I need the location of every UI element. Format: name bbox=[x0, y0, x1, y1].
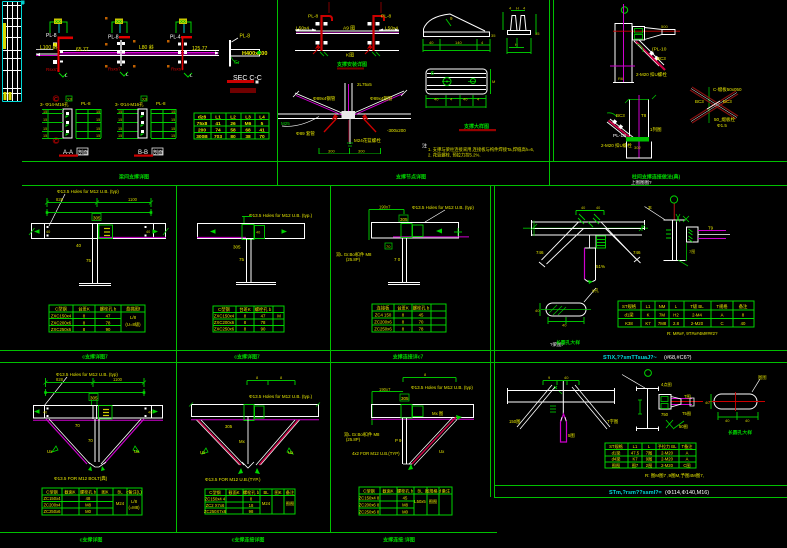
svg-text:PL-8: PL-8 bbox=[308, 14, 318, 20]
svg-text:2.8: 2.8 bbox=[673, 321, 680, 326]
svg-text:PL-8: PL-8 bbox=[381, 14, 391, 20]
svg-text:截面K: 截面K bbox=[382, 488, 393, 495]
svg-text:螺栓孔 b: 螺栓孔 b bbox=[100, 306, 117, 313]
svg-text:703: 703 bbox=[214, 134, 222, 140]
svg-text:75x8: 75x8 bbox=[197, 121, 208, 127]
svg-text:L50x4: L50x4 bbox=[296, 25, 309, 31]
svg-text:L1: L1 bbox=[633, 444, 638, 449]
svg-text:XX: XX bbox=[142, 97, 148, 102]
svg-text:Ux: Ux bbox=[134, 449, 140, 454]
svg-text:ZC4 150: ZC4 150 bbox=[375, 313, 392, 318]
svg-text:Φ89 套管: Φ89 套管 bbox=[296, 130, 315, 137]
svg-text:47: 47 bbox=[261, 314, 266, 319]
svg-text:15: 15 bbox=[43, 118, 47, 122]
svg-text:ZXC200x6: ZXC200x6 bbox=[51, 321, 72, 326]
svg-text:d≥8: d≥8 bbox=[198, 114, 207, 120]
svg-text:3- Φ14-M16孔: 3- Φ14-M16孔 bbox=[115, 101, 144, 108]
svg-text:6: 6 bbox=[431, 71, 434, 77]
svg-text:15: 15 bbox=[43, 127, 47, 131]
svg-text:L50x5: L50x5 bbox=[414, 499, 426, 504]
svg-text:2-M20: 2-M20 bbox=[661, 457, 674, 462]
svg-text:90: 90 bbox=[106, 327, 111, 332]
svg-text:15: 15 bbox=[171, 110, 175, 114]
svg-text:ZC250x6: ZC250x6 bbox=[44, 509, 62, 514]
svg-text:K38: K38 bbox=[625, 321, 633, 326]
svg-text:L100 斜: L100 斜 bbox=[40, 44, 58, 51]
svg-text:Rsxs?: Rsxs? bbox=[171, 67, 184, 72]
svg-text:75: 75 bbox=[86, 258, 92, 263]
svg-text:125.77: 125.77 bbox=[192, 46, 208, 52]
svg-text:7 0: 7 0 bbox=[394, 257, 401, 262]
svg-text:305: 305 bbox=[225, 424, 233, 429]
svg-text:41: 41 bbox=[259, 127, 265, 133]
svg-text:c支撑详图: c支撑详图 bbox=[80, 537, 103, 544]
svg-text:2. 花篮螺栓, 预拉力控5.2%.: 2. 花篮螺栓, 预拉力控5.2%. bbox=[428, 152, 481, 159]
svg-text:K图: K图 bbox=[346, 53, 354, 59]
svg-text:d1梁: d1梁 bbox=[624, 312, 634, 319]
svg-text:40: 40 bbox=[434, 97, 439, 102]
svg-text:φ孔: φ孔 bbox=[592, 287, 600, 294]
svg-text:T级 BL: T级 BL bbox=[690, 303, 704, 310]
svg-text:Rsxs?: Rsxs? bbox=[108, 67, 121, 72]
svg-text:90: 90 bbox=[261, 327, 266, 332]
svg-text:(25.8P): (25.8P) bbox=[346, 437, 361, 442]
svg-text:P 9: P 9 bbox=[395, 438, 402, 443]
svg-text:Φ13.5 Holes for M12 U.B. (typ): Φ13.5 Holes for M12 U.B. (typ) bbox=[57, 189, 119, 194]
svg-text:C型钢: C型钢 bbox=[209, 489, 220, 496]
svg-text:ZC200x6 8: ZC200x6 8 bbox=[359, 503, 380, 508]
svg-text:45: 45 bbox=[403, 496, 408, 501]
svg-text:PL-4: PL-4 bbox=[170, 35, 181, 41]
svg-text:L/8: L/8 bbox=[131, 499, 137, 504]
svg-text:828: 828 bbox=[56, 377, 64, 382]
svg-text:C: C bbox=[54, 139, 58, 145]
svg-text:T字图: T字图 bbox=[607, 418, 618, 425]
svg-text:2-M4: 2-M4 bbox=[692, 313, 702, 318]
svg-text:Φ89x4钢管: Φ89x4钢管 bbox=[370, 95, 393, 102]
svg-text:300B: 300B bbox=[196, 134, 208, 140]
svg-text:ZC250x6 8: ZC250x6 8 bbox=[359, 510, 380, 515]
svg-text:台班K: 台班K bbox=[78, 306, 90, 313]
svg-text:台班K: 台班K bbox=[397, 305, 409, 312]
svg-text:XX: XX bbox=[180, 19, 186, 24]
svg-text:(=M8): (=M8) bbox=[128, 505, 140, 510]
svg-text:7M8: 7M8 bbox=[658, 321, 667, 326]
svg-text:40: 40 bbox=[596, 206, 600, 210]
svg-text:40: 40 bbox=[562, 323, 567, 328]
svg-text:M25: M25 bbox=[281, 121, 290, 126]
svg-text:PL-8: PL-8 bbox=[108, 35, 119, 41]
svg-text:305: 305 bbox=[401, 396, 409, 401]
svg-text:C: C bbox=[54, 97, 58, 103]
svg-text:302: 302 bbox=[634, 145, 641, 150]
svg-text:L4: L4 bbox=[259, 114, 265, 120]
svg-text:图规格 d: 图规格 d bbox=[425, 488, 442, 495]
svg-text:螺栓孔 b: 螺栓孔 b bbox=[80, 489, 97, 496]
svg-text:予拉力 BL: 予拉力 BL bbox=[658, 443, 678, 450]
svg-text:200: 200 bbox=[198, 127, 206, 133]
svg-text:螺栓孔 b: 螺栓孔 b bbox=[255, 306, 272, 313]
svg-text:4x2 FOR M12 U.B.(TYP): 4x2 FOR M12 U.B.(TYP) bbox=[352, 451, 400, 456]
svg-text:305: 305 bbox=[233, 245, 241, 250]
svg-text:40: 40 bbox=[256, 231, 260, 235]
svg-text:剖面: 剖面 bbox=[153, 149, 163, 156]
svg-text:ZC250X7x6: ZC250X7x6 bbox=[204, 509, 227, 514]
svg-text:Gr: Gr bbox=[234, 60, 240, 66]
svg-text:BC3: BC3 bbox=[695, 99, 704, 104]
svg-text:15: 15 bbox=[96, 134, 100, 138]
svg-text:c支撑详图7: c支撑详图7 bbox=[82, 354, 108, 361]
svg-text:T规格: T规格 bbox=[716, 303, 728, 310]
svg-text:C-缀板50x050: C-缀板50x050 bbox=[713, 86, 742, 93]
svg-text:40: 40 bbox=[535, 308, 540, 313]
svg-text:50_缀板栓: 50_缀板栓 bbox=[714, 116, 736, 123]
svg-text:c支撑连接详图: c支撑连接详图 bbox=[232, 537, 265, 544]
svg-text:C型钢: C型钢 bbox=[55, 306, 67, 313]
svg-text:L50x4: L50x4 bbox=[385, 25, 398, 31]
svg-text:40: 40 bbox=[46, 230, 50, 234]
svg-text:M8: M8 bbox=[85, 503, 91, 508]
svg-text:M24花篮螺栓: M24花篮螺栓 bbox=[354, 137, 381, 144]
svg-text:Φ13.5 Holes for M12 U.B. (typ): Φ13.5 Holes for M12 U.B. (typ) bbox=[56, 372, 118, 377]
svg-text:M24: M24 bbox=[262, 501, 271, 506]
svg-text:ZC250x6: ZC250x6 bbox=[374, 327, 392, 332]
svg-text:40: 40 bbox=[146, 230, 150, 234]
svg-text:长圆孔大样: 长圆孔大样 bbox=[728, 429, 752, 436]
svg-text:L1: L1 bbox=[215, 114, 221, 120]
svg-text:NM: NM bbox=[659, 304, 666, 309]
svg-text:68: 68 bbox=[245, 127, 251, 133]
svg-text:828: 828 bbox=[56, 197, 64, 202]
svg-text:Φ13.5 Holes for M12 U.B. (typ): Φ13.5 Holes for M12 U.B. (typ) bbox=[411, 385, 473, 390]
svg-text:备注: 备注 bbox=[286, 489, 295, 496]
svg-text:L/8: L/8 bbox=[130, 315, 137, 320]
svg-text:ZC150x4: ZC150x4 bbox=[44, 496, 62, 501]
svg-text:(#68,#C6?): (#68,#C6?) bbox=[664, 355, 692, 361]
svg-text:ZXC150x4: ZXC150x4 bbox=[214, 314, 235, 319]
svg-text:BC3: BC3 bbox=[616, 113, 625, 118]
svg-text:ZC150x4 8: ZC150x4 8 bbox=[359, 496, 380, 501]
svg-text:T备注: T备注 bbox=[682, 443, 694, 450]
svg-text:BC3: BC3 bbox=[657, 56, 666, 61]
svg-text:38: 38 bbox=[245, 134, 251, 140]
svg-text:ZC2 X7x6: ZC2 X7x6 bbox=[206, 503, 225, 508]
svg-text:截面K: 截面K bbox=[64, 489, 75, 496]
svg-text:Φ13.5 Holes for M12 U.B. (typ): Φ13.5 Holes for M12 U.B. (typ) bbox=[412, 205, 474, 210]
svg-text:d1梁: d1梁 bbox=[612, 450, 622, 457]
svg-text:40: 40 bbox=[741, 321, 746, 326]
svg-text:A: A bbox=[686, 457, 689, 462]
svg-text:备注: 备注 bbox=[442, 488, 451, 495]
svg-text:BC3: BC3 bbox=[723, 99, 732, 104]
svg-text:K7: K7 bbox=[632, 457, 638, 462]
svg-text:15: 15 bbox=[118, 127, 122, 131]
svg-text:190x7: 190x7 bbox=[379, 387, 391, 392]
svg-text:41: 41 bbox=[215, 121, 221, 127]
svg-text:Φ13.5 FOR M12 U.B.(TYP.): Φ13.5 FOR M12 U.B.(TYP.) bbox=[205, 477, 261, 482]
svg-text:M6: M6 bbox=[245, 121, 252, 127]
svg-text:75: 75 bbox=[239, 257, 245, 262]
svg-text:15: 15 bbox=[118, 110, 122, 114]
svg-text:5: 5 bbox=[261, 121, 264, 127]
svg-text:M0: M0 bbox=[85, 509, 91, 514]
svg-text:40: 40 bbox=[745, 418, 750, 423]
svg-text:C型钢: C型钢 bbox=[46, 489, 57, 496]
svg-text:(25.8P): (25.8P) bbox=[346, 257, 361, 262]
svg-text:15: 15 bbox=[96, 110, 100, 114]
svg-text:PL-8: PL-8 bbox=[81, 101, 91, 106]
svg-text:15: 15 bbox=[43, 134, 47, 138]
svg-text:305: 305 bbox=[90, 396, 98, 401]
svg-text:K7: K7 bbox=[645, 321, 651, 326]
svg-text:A: A bbox=[686, 451, 689, 456]
svg-text:70: 70 bbox=[386, 244, 391, 249]
svg-text:15: 15 bbox=[118, 118, 122, 122]
svg-text:C型钢: C型钢 bbox=[363, 488, 374, 495]
svg-text:BL: BL bbox=[117, 490, 123, 495]
svg-text:PL-8: PL-8 bbox=[46, 33, 57, 39]
svg-text:R6: R6 bbox=[618, 76, 624, 81]
svg-text:78: 78 bbox=[261, 320, 266, 325]
svg-text:40: 40 bbox=[564, 375, 569, 380]
svg-text:35: 35 bbox=[491, 33, 496, 38]
svg-text:螺栓孔 b: 螺栓孔 b bbox=[413, 305, 430, 312]
svg-text:300: 300 bbox=[358, 149, 365, 154]
svg-text:PL-10: PL-10 bbox=[613, 133, 626, 139]
svg-text:(Φ114,Φ140,M16): (Φ114,Φ140,M16) bbox=[665, 490, 709, 496]
svg-text:15: 15 bbox=[118, 134, 122, 138]
svg-text:M24: M24 bbox=[116, 501, 125, 506]
svg-text:Ux: Ux bbox=[200, 450, 206, 455]
svg-text:ZXC250x6: ZXC250x6 bbox=[214, 327, 235, 332]
svg-text:(U=8级): (U=8级) bbox=[125, 321, 141, 328]
svg-text:140: 140 bbox=[455, 40, 462, 45]
svg-text:40: 40 bbox=[43, 411, 47, 415]
svg-text:支撑连接详c7: 支撑连接详c7 bbox=[392, 354, 424, 361]
svg-text:ZXC150x4: ZXC150x4 bbox=[51, 314, 72, 319]
svg-text:2L75x5: 2L75x5 bbox=[357, 82, 372, 87]
svg-text:BL: BL bbox=[263, 490, 269, 495]
svg-text:47.5: 47.5 bbox=[631, 451, 640, 456]
svg-text:R: 图M图7 ,9图M,予图4M图7,: R: 图M图7 ,9图M,予图4M图7, bbox=[645, 472, 704, 479]
svg-text:40: 40 bbox=[76, 243, 82, 248]
svg-text:40: 40 bbox=[429, 40, 434, 45]
svg-text:支撑安装详图: 支撑安装详图 bbox=[336, 61, 367, 68]
svg-text:长圆孔大样: 长圆孔大样 bbox=[556, 339, 580, 346]
svg-text:78: 78 bbox=[419, 327, 424, 332]
svg-text:40: 40 bbox=[463, 97, 468, 102]
svg-text:15: 15 bbox=[96, 118, 100, 122]
svg-text:H: H bbox=[516, 6, 519, 11]
svg-text:2-M20 扣U螺栓: 2-M20 扣U螺栓 bbox=[636, 71, 667, 78]
svg-text:PL-8: PL-8 bbox=[156, 101, 166, 106]
svg-text:7M: 7M bbox=[659, 313, 665, 318]
svg-text:65.77: 65.77 bbox=[76, 47, 89, 53]
svg-text:Φ89x4钢管: Φ89x4钢管 bbox=[313, 95, 336, 102]
svg-text:15: 15 bbox=[171, 127, 175, 131]
svg-text:XX: XX bbox=[55, 19, 61, 24]
svg-text:74: 74 bbox=[215, 127, 221, 133]
svg-text:70: 70 bbox=[75, 423, 80, 428]
svg-text:40: 40 bbox=[705, 400, 710, 405]
svg-text:XX: XX bbox=[67, 97, 73, 102]
svg-text:螺栓孔 b: 螺栓孔 b bbox=[243, 489, 260, 496]
svg-text:750: 750 bbox=[661, 412, 669, 417]
svg-text:746: 746 bbox=[536, 250, 544, 255]
svg-text:连接板: 连接板 bbox=[377, 305, 391, 312]
svg-text:1100: 1100 bbox=[128, 197, 138, 202]
svg-text:2-M20 扣U螺栓: 2-M20 扣U螺栓 bbox=[601, 142, 632, 149]
svg-text:M: M bbox=[492, 79, 495, 84]
svg-text:Φ1.5: Φ1.5 bbox=[717, 123, 727, 128]
svg-text:截面K: 截面K bbox=[228, 489, 239, 496]
svg-text:1100: 1100 bbox=[113, 377, 123, 382]
svg-text:Rsxs?: Rsxs? bbox=[46, 67, 59, 72]
svg-text:15: 15 bbox=[171, 118, 175, 122]
svg-text:47: 47 bbox=[106, 314, 111, 319]
svg-text:26: 26 bbox=[230, 121, 236, 127]
svg-text:L3: L3 bbox=[245, 114, 251, 120]
svg-text:2-M20: 2-M20 bbox=[661, 451, 674, 456]
svg-text:15: 15 bbox=[96, 127, 100, 131]
svg-text:ST规格: ST规格 bbox=[622, 303, 637, 310]
svg-text:c备注(L): c备注(L) bbox=[126, 489, 142, 496]
svg-text:70: 70 bbox=[419, 320, 424, 325]
svg-text:注: 注 bbox=[422, 143, 427, 150]
svg-text:500: 500 bbox=[661, 24, 668, 29]
svg-text:ZC200x6: ZC200x6 bbox=[374, 320, 392, 325]
svg-text:305: 305 bbox=[400, 217, 408, 222]
svg-text:d4梁: d4梁 bbox=[612, 456, 622, 463]
svg-text:T9: T9 bbox=[708, 226, 714, 231]
svg-text:支撑节点详图: 支撑节点详图 bbox=[395, 174, 426, 181]
svg-text:Ux: Ux bbox=[439, 449, 445, 454]
svg-text:45: 45 bbox=[419, 313, 424, 318]
svg-text:80: 80 bbox=[230, 134, 236, 140]
svg-text:H2: H2 bbox=[673, 313, 679, 318]
svg-text:M: M bbox=[277, 314, 281, 319]
svg-text:70: 70 bbox=[259, 134, 265, 140]
svg-text:2-M20: 2-M20 bbox=[661, 463, 674, 468]
svg-text:15: 15 bbox=[171, 134, 175, 138]
svg-text:190x7: 190x7 bbox=[379, 205, 391, 210]
svg-text:T8: T8 bbox=[641, 113, 647, 118]
svg-text:支撑连接:详图: 支撑连接:详图 bbox=[382, 537, 415, 544]
svg-text:7图: 7图 bbox=[689, 248, 695, 254]
svg-text:ZXC200x6: ZXC200x6 bbox=[214, 320, 235, 325]
svg-text:70: 70 bbox=[88, 438, 93, 443]
svg-text:L1: L1 bbox=[646, 304, 651, 309]
svg-text:305: 305 bbox=[93, 216, 101, 221]
svg-text:A: A bbox=[721, 313, 724, 318]
svg-text:40: 40 bbox=[725, 418, 730, 423]
svg-text:K: K bbox=[647, 313, 650, 318]
svg-text:58: 58 bbox=[230, 127, 236, 133]
svg-text:BL: BL bbox=[417, 489, 423, 494]
svg-text:ZXC250x6: ZXC250x6 bbox=[51, 327, 72, 332]
svg-text:c支撑详图7: c支撑详图7 bbox=[234, 354, 260, 361]
svg-text:H400x200: H400x200 bbox=[242, 51, 267, 57]
svg-text:L80 斜: L80 斜 bbox=[139, 44, 154, 51]
svg-text:M0: M0 bbox=[402, 510, 408, 515]
svg-text:悬挑图f: 悬挑图f bbox=[126, 306, 141, 313]
svg-text:支撑大样图: 支撑大样图 bbox=[463, 123, 489, 130]
svg-text:Mx: Mx bbox=[239, 439, 246, 444]
svg-text:746: 746 bbox=[633, 250, 641, 255]
svg-text:40: 40 bbox=[148, 411, 152, 415]
svg-text:78: 78 bbox=[106, 321, 111, 326]
svg-text:Ux: Ux bbox=[47, 449, 53, 454]
svg-text:PL-8: PL-8 bbox=[240, 34, 251, 40]
svg-text:40: 40 bbox=[581, 206, 585, 210]
svg-text:Φ13.5 Holes for M12 U.B. (typ.: Φ13.5 Holes for M12 U.B. (typ.) bbox=[249, 213, 313, 218]
svg-text:1列图: 1列图 bbox=[650, 126, 662, 133]
svg-text:R: M#x#, 9T#x#4M###2?: R: M#x#, 9T#x#4M###2? bbox=[667, 331, 718, 336]
svg-text:(PL-10: (PL-10 bbox=[652, 47, 667, 53]
svg-text:ST规格: ST规格 bbox=[609, 443, 624, 450]
svg-text:螺栓孔 b: 螺栓孔 b bbox=[397, 488, 414, 495]
svg-text:Φ13.5 FOR M12 BOLT(典): Φ13.5 FOR M12 BOLT(典) bbox=[54, 475, 108, 482]
svg-text:台班K: 台班K bbox=[239, 306, 251, 313]
svg-text:M8: M8 bbox=[402, 503, 408, 508]
svg-text:15: 15 bbox=[43, 110, 47, 114]
svg-text:Φ13.5 Holes for M12 U.B. (typ.: Φ13.5 Holes for M12 U.B. (typ.) bbox=[249, 394, 313, 399]
svg-text:48: 48 bbox=[86, 496, 91, 501]
svg-text:STm,?rsm??ssml?=: STm,?rsm??ssml?= bbox=[609, 490, 662, 496]
svg-text:XX: XX bbox=[116, 19, 122, 24]
svg-text:H: H bbox=[515, 42, 518, 47]
svg-text:C型钢: C型钢 bbox=[218, 306, 230, 313]
svg-text:L2: L2 bbox=[230, 114, 236, 120]
svg-text:A9 图: A9 图 bbox=[343, 25, 355, 31]
svg-text:梁间支撑详图: 梁间支撑详图 bbox=[118, 174, 149, 181]
svg-text:51%: 51% bbox=[596, 264, 605, 269]
svg-text:2-M20: 2-M20 bbox=[691, 321, 704, 326]
svg-text:18: 18 bbox=[249, 503, 254, 508]
svg-text:Ux: Ux bbox=[288, 450, 294, 455]
svg-text:上图图图?: 上图图图? bbox=[631, 179, 652, 186]
svg-text:ZC150x4 4: ZC150x4 4 bbox=[205, 497, 226, 502]
svg-text:300: 300 bbox=[328, 149, 335, 154]
svg-text:C: C bbox=[720, 321, 723, 326]
svg-text:剖面: 剖面 bbox=[78, 149, 88, 156]
svg-text:ZC200x4: ZC200x4 bbox=[44, 503, 62, 508]
svg-text:备注: 备注 bbox=[739, 303, 748, 310]
svg-text:-300x200: -300x200 bbox=[387, 128, 406, 133]
svg-text:STiX,??smTTsuaJ?~: STiX,??smTTsuaJ?~ bbox=[603, 355, 657, 361]
svg-text:98: 98 bbox=[249, 509, 254, 514]
